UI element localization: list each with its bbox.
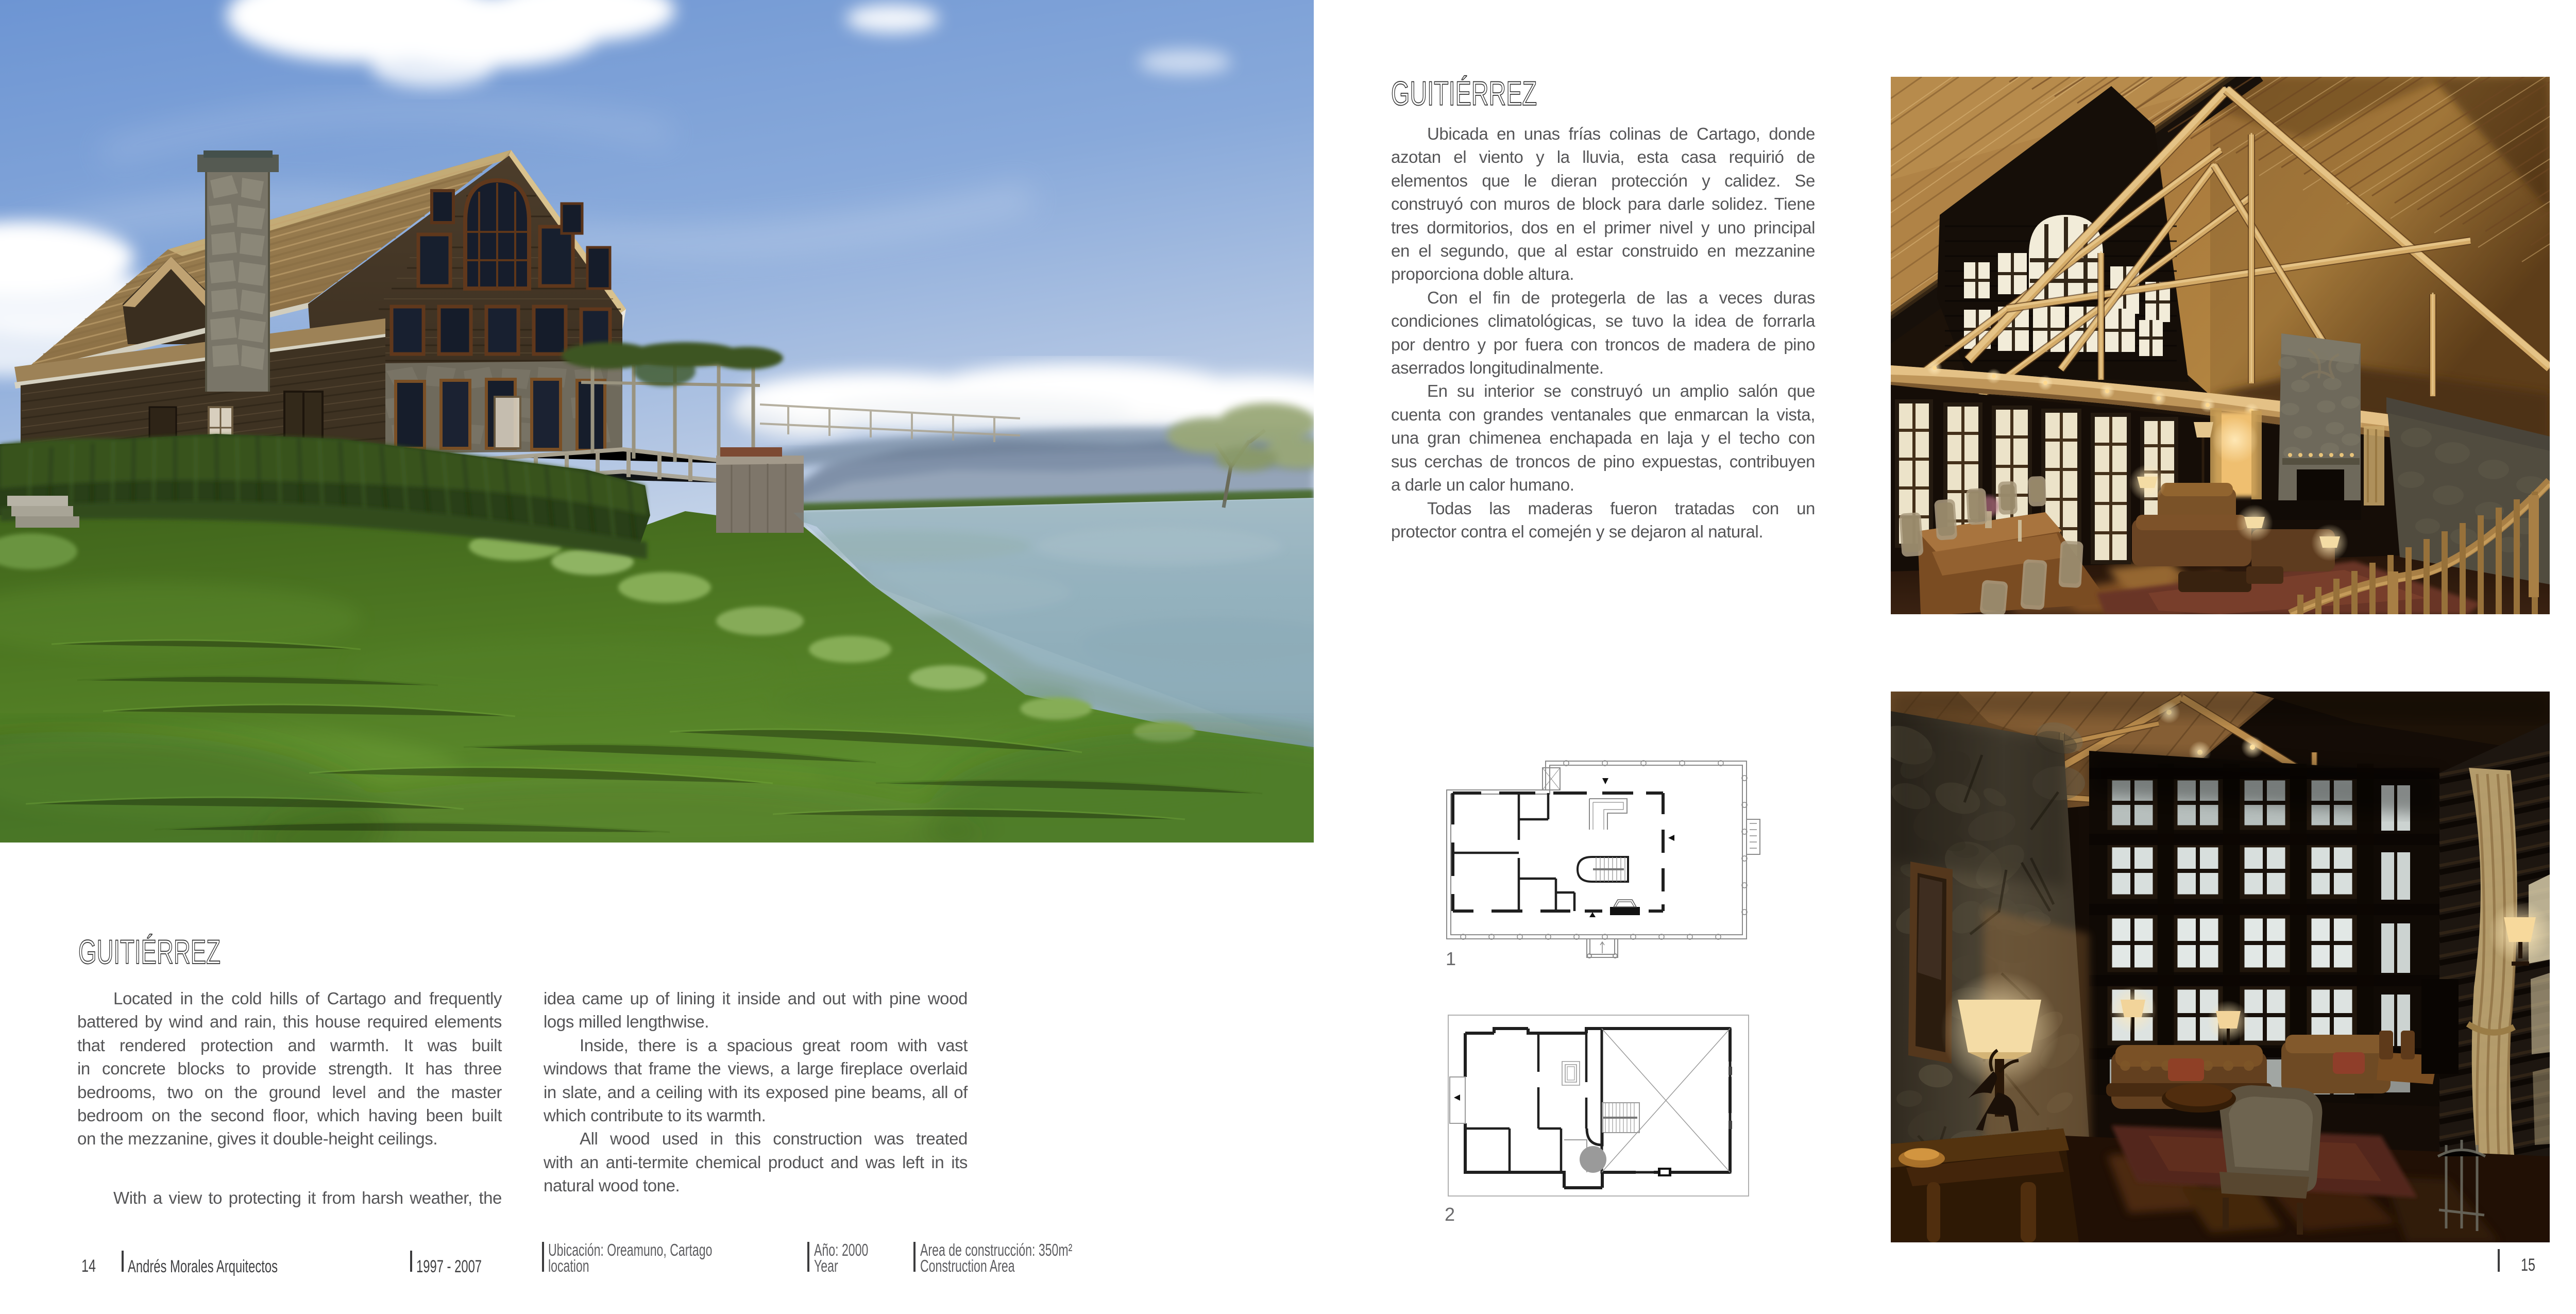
svg-text:GUITIÉRREZ: GUITIÉRREZ	[1391, 74, 1537, 112]
svg-text:GUITIÉRREZ: GUITIÉRREZ	[78, 933, 221, 971]
